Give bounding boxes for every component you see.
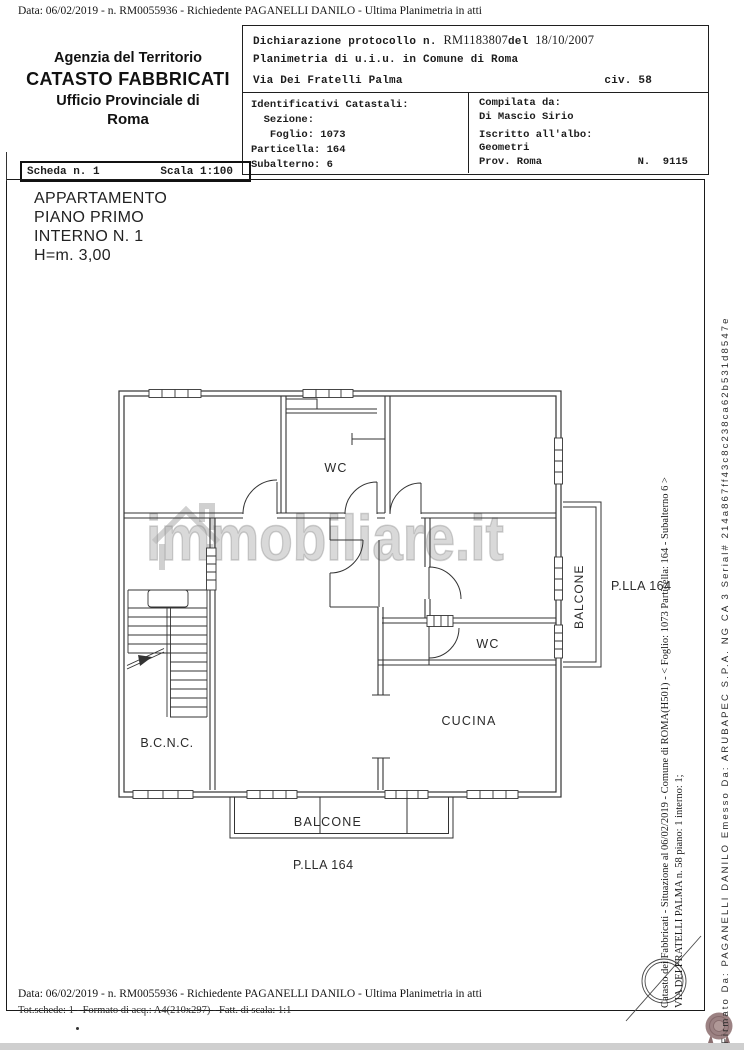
margin-catasto-line: Catasto dei Fabbricati - Situazione al 0… xyxy=(660,186,674,1008)
scan-edge-strip xyxy=(0,1043,744,1050)
room-label-cucina: CUCINA xyxy=(426,714,512,728)
protocol-row: Dichiarazione protocollo n. RM1183807del… xyxy=(253,33,698,54)
albo-number: N. 9115 xyxy=(638,156,698,170)
street-name: Via Dei Fratelli Palma xyxy=(253,75,403,87)
subalterno-row: Subalterno: 6 xyxy=(251,158,460,173)
compilata-column: Compilata da: Di Mascio Sirio Iscritto a… xyxy=(468,93,708,173)
identificativi-column: Identificativi Catastali: Sezione: Fogli… xyxy=(243,93,468,173)
protocol-date: 18/10/2007 xyxy=(535,33,594,48)
agency-name: Agenzia del Territorio xyxy=(20,50,236,66)
cadastral-floorplan-document: { "page": { "top_line": "Data: 06/02/201… xyxy=(0,0,744,1050)
margin-address-line: VIA DEI FRATELLI PALMA n. 58 piano: 1 in… xyxy=(674,186,688,1008)
foglio-row: Foglio: 1073 xyxy=(251,128,460,143)
declaration-top-section: Dichiarazione protocollo n. RM1183807del… xyxy=(243,26,708,92)
provincia-roma: Roma xyxy=(20,111,236,128)
del-label: del xyxy=(508,36,535,48)
prov-label: Prov. Roma xyxy=(479,156,542,170)
ufficio-provinciale: Ufficio Provinciale di xyxy=(20,93,236,109)
particella-row: Particella: 164 xyxy=(251,143,460,158)
plan-frame xyxy=(6,179,705,1011)
sezione-row: Sezione: xyxy=(251,113,460,128)
prov-row: Prov. Roma N. 9115 xyxy=(479,156,698,170)
footer-data-line: Data: 06/02/2019 - n. RM0055936 - Richie… xyxy=(18,988,482,1000)
scheda-number: Scheda n. 1 xyxy=(27,166,100,178)
parcel-label-bottom: P.LLA 164 xyxy=(293,858,383,872)
room-label-bcnc: B.C.N.C. xyxy=(126,736,208,750)
albo-label: Iscritto all'albo: xyxy=(479,129,698,143)
protocol-number: RM1183807 xyxy=(443,33,508,48)
margin-signature-line: Firmato Da: PAGANELLI DANILO Emesso Da: … xyxy=(720,268,733,1044)
compilata-label: Compilata da: xyxy=(479,97,698,111)
compilata-name: Di Mascio Sirio xyxy=(479,111,698,125)
protocol-label: Dichiarazione protocollo n. xyxy=(253,36,443,48)
identificativi-title: Identificativi Catastali: xyxy=(251,98,460,113)
albo-value: Geometri xyxy=(479,142,698,156)
declaration-box: Dichiarazione protocollo n. RM1183807del… xyxy=(242,25,709,175)
room-label-wc-top: WC xyxy=(316,461,356,475)
footer-schede-line: Tot.schede: 1 - Formato di acq.: A4(210x… xyxy=(18,1005,291,1016)
agency-header: Agenzia del Territorio CATASTO FABBRICAT… xyxy=(20,50,236,128)
top-data-line: Data: 06/02/2019 - n. RM0055936 - Richie… xyxy=(18,5,482,17)
room-label-balcone-bottom: BALCONE xyxy=(287,815,369,829)
civ-number: civ. 58 xyxy=(604,75,698,87)
scala-value: Scala 1:100 xyxy=(160,166,233,178)
planimetria-row: Planimetria di u.i.u. in Comune di Roma xyxy=(253,54,698,75)
room-label-balcone-right: BALCONE xyxy=(572,543,588,629)
title-interno: INTERNO N. 1 xyxy=(34,227,167,246)
title-piano: PIANO PRIMO xyxy=(34,208,167,227)
plan-title-block: APPARTAMENTO PIANO PRIMO INTERNO N. 1 H=… xyxy=(34,189,167,265)
declaration-bottom-section: Identificativi Catastali: Sezione: Fogli… xyxy=(243,92,708,173)
title-appartamento: APPARTAMENTO xyxy=(34,189,167,208)
catasto-fabbricati-title: CATASTO FABBRICATI xyxy=(20,69,236,90)
title-altezza: H=m. 3,00 xyxy=(34,246,167,265)
room-label-wc-bottom: WC xyxy=(468,637,508,651)
scan-speck xyxy=(76,1027,79,1030)
